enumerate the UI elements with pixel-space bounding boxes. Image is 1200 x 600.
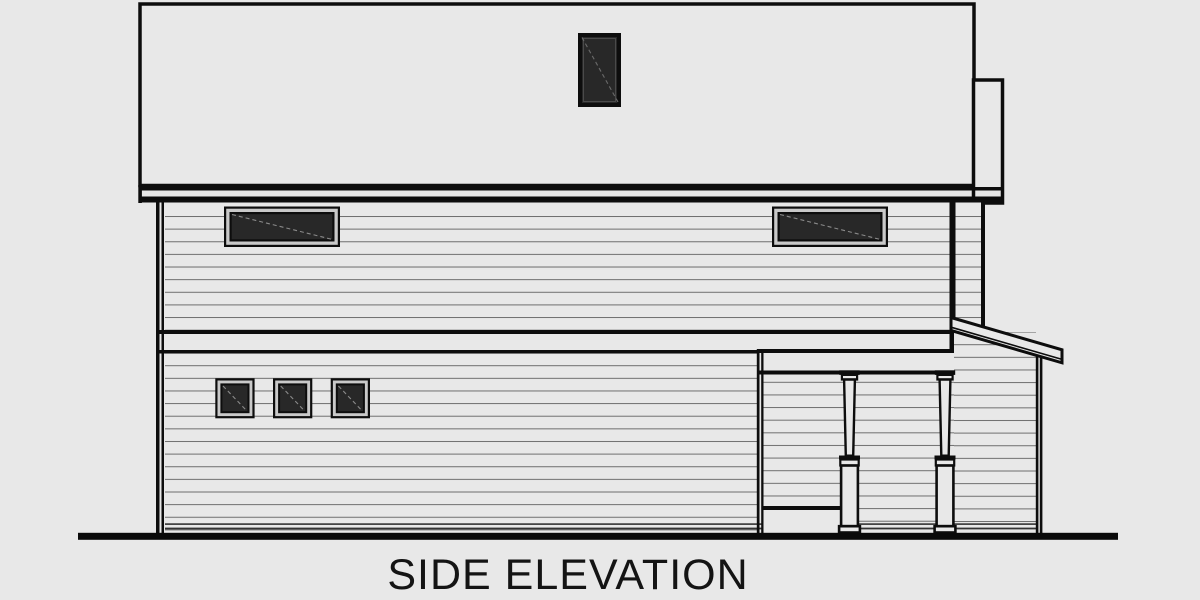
elevation-drawing: SIDE ELEVATION (0, 0, 1200, 600)
clerestory-window-left (225, 208, 339, 246)
square-window-2 (274, 379, 311, 417)
skylight-window (580, 35, 619, 105)
drawing-title: SIDE ELEVATION (0, 552, 1168, 598)
elevation-canvas (0, 0, 1200, 600)
square-window-3 (332, 379, 369, 417)
clerestory-window-right (773, 208, 887, 246)
chimney (974, 80, 1003, 203)
main-roof (140, 4, 974, 186)
rear-wall-strip (956, 203, 986, 333)
porch-stoop (763, 506, 843, 533)
square-window-1 (216, 379, 253, 417)
ground-line (78, 533, 1118, 540)
